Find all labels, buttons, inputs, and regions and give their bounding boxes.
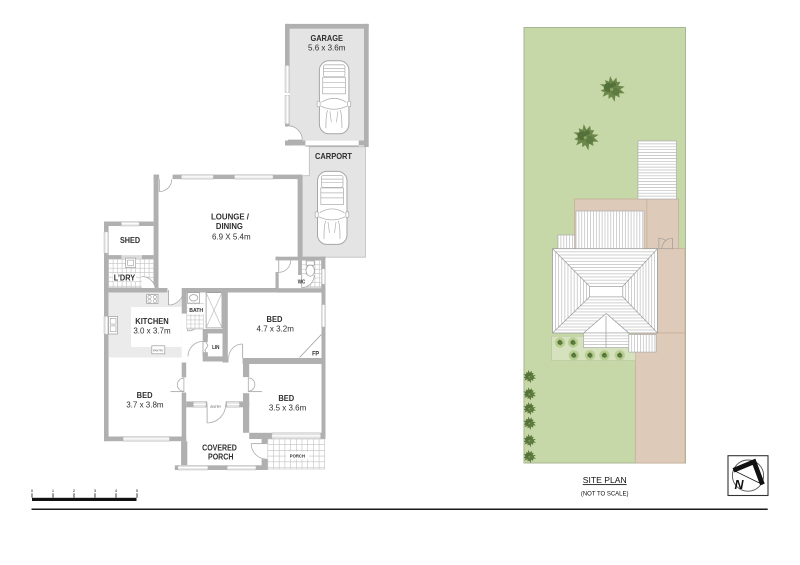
svg-text:5: 5: [136, 488, 139, 493]
svg-text:(NOT TO SCALE): (NOT TO SCALE): [581, 492, 629, 498]
svg-text:3: 3: [94, 488, 97, 493]
svg-text:WC: WC: [298, 279, 306, 285]
svg-text:3.7 x 3.8m: 3.7 x 3.8m: [126, 401, 164, 410]
svg-text:FP: FP: [312, 351, 319, 358]
svg-text:GARAGE: GARAGE: [310, 33, 343, 43]
svg-text:2: 2: [73, 488, 76, 493]
svg-text:SITE PLAN: SITE PLAN: [583, 475, 627, 485]
svg-text:BED: BED: [278, 393, 294, 403]
svg-text:6.9 X 5.4m: 6.9 X 5.4m: [212, 233, 251, 242]
svg-text:BED: BED: [267, 314, 283, 324]
svg-text:BED: BED: [137, 390, 153, 400]
svg-text:L’DRY: L’DRY: [114, 274, 136, 283]
svg-text:LIN: LIN: [212, 345, 220, 351]
svg-text:0: 0: [31, 488, 34, 493]
svg-text:KITCHEN: KITCHEN: [135, 316, 169, 326]
svg-text:ENTRY: ENTRY: [210, 405, 221, 409]
svg-text:3.0 x 3.7m: 3.0 x 3.7m: [133, 327, 171, 336]
svg-text:3.5 x 3.6m: 3.5 x 3.6m: [269, 404, 307, 413]
svg-text:PANTRY: PANTRY: [153, 348, 164, 352]
svg-text:N: N: [735, 478, 745, 492]
svg-text:DINING: DINING: [216, 221, 243, 231]
svg-text:LOUNGE /: LOUNGE /: [211, 212, 250, 222]
svg-text:PORCH: PORCH: [208, 452, 233, 461]
svg-text:SHED: SHED: [120, 236, 140, 245]
svg-text:PORCH: PORCH: [290, 454, 306, 459]
svg-text:5.6 x 3.6m: 5.6 x 3.6m: [308, 44, 346, 53]
svg-text:4: 4: [115, 488, 118, 493]
svg-text:COVERED: COVERED: [202, 443, 237, 452]
svg-text:CARPORT: CARPORT: [315, 151, 353, 161]
svg-text:BATH: BATH: [189, 308, 203, 314]
svg-text:1: 1: [52, 488, 55, 493]
svg-text:4.7 x 3.2m: 4.7 x 3.2m: [257, 325, 295, 334]
